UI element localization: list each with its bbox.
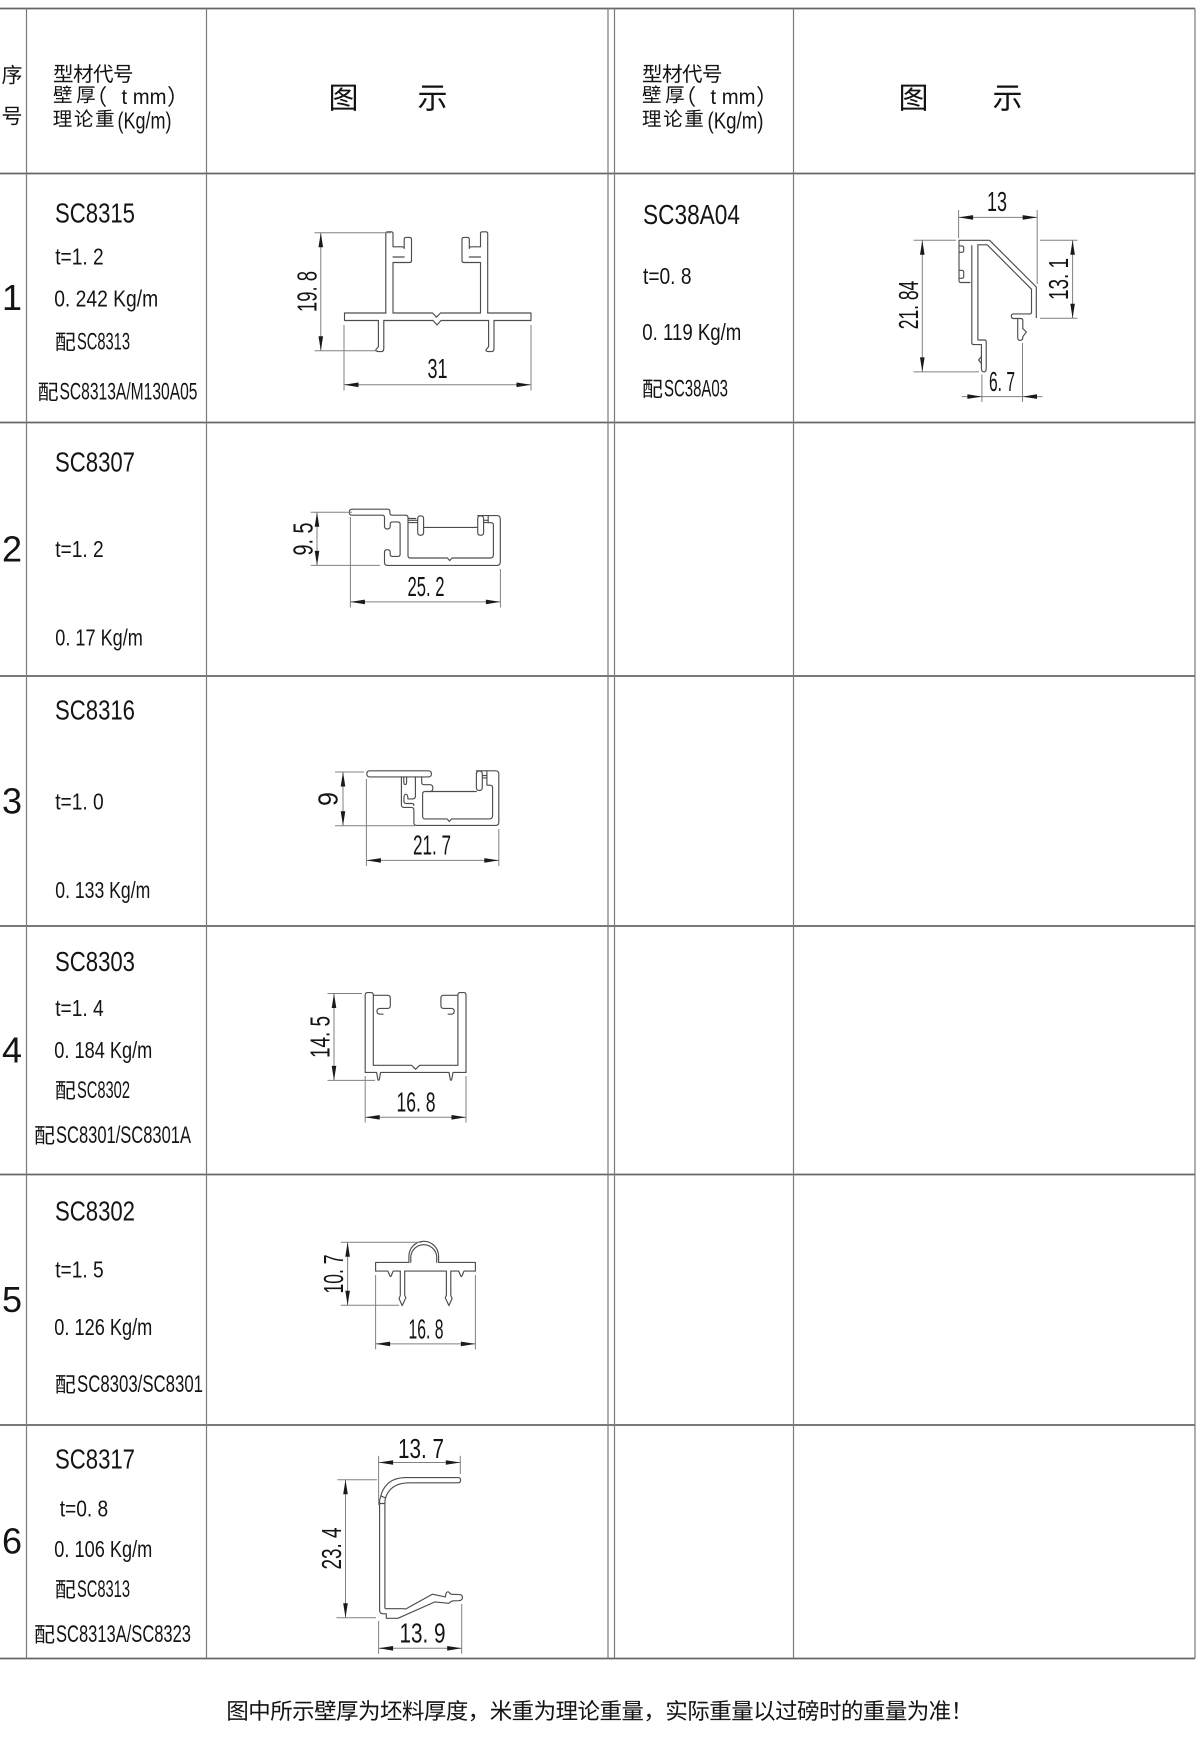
svg-text:t=0. 8: t=0. 8: [60, 1496, 108, 1522]
svg-text:10. 7: 10. 7: [318, 1255, 349, 1294]
svg-text:5: 5: [2, 1279, 22, 1320]
svg-text:SC38A04: SC38A04: [643, 199, 740, 230]
svg-text:SC8302: SC8302: [77, 1077, 130, 1104]
svg-text:0. 242 Kg/m: 0. 242 Kg/m: [54, 286, 158, 312]
svg-text:13. 7: 13. 7: [398, 1433, 444, 1464]
svg-text:23. 4: 23. 4: [316, 1528, 347, 1570]
svg-text:SC8307: SC8307: [55, 447, 135, 478]
svg-text:13: 13: [987, 186, 1007, 217]
svg-text:19. 8: 19. 8: [292, 271, 323, 312]
svg-text:SC38A03: SC38A03: [664, 376, 728, 403]
svg-text:6: 6: [2, 1521, 22, 1562]
svg-text:SC8315: SC8315: [55, 198, 135, 229]
svg-text:14. 5: 14. 5: [305, 1016, 336, 1058]
svg-text:0. 126 Kg/m: 0. 126 Kg/m: [54, 1314, 152, 1340]
svg-text:16. 8: 16. 8: [397, 1087, 436, 1118]
svg-text:t=1. 0: t=1. 0: [55, 789, 103, 815]
svg-text:31: 31: [428, 353, 448, 384]
svg-text:t=1. 2: t=1. 2: [55, 536, 103, 562]
svg-text:21. 84: 21. 84: [893, 281, 924, 330]
svg-text:SC8316: SC8316: [55, 695, 135, 726]
svg-text:SC8302: SC8302: [55, 1196, 135, 1227]
svg-text:6. 7: 6. 7: [989, 366, 1015, 397]
svg-text:9. 5: 9. 5: [288, 523, 319, 556]
svg-text:t mm: t mm: [711, 86, 756, 109]
svg-text:SC8313A/SC8323: SC8313A/SC8323: [56, 1621, 191, 1648]
svg-text:SC8313: SC8313: [77, 329, 130, 356]
svg-text:13. 1: 13. 1: [1043, 258, 1074, 300]
svg-text:SC8303: SC8303: [55, 946, 135, 977]
svg-text:0. 106 Kg/m: 0. 106 Kg/m: [54, 1536, 152, 1562]
svg-text:3: 3: [2, 781, 22, 822]
svg-text:21. 7: 21. 7: [413, 830, 451, 861]
svg-text:9: 9: [313, 792, 344, 806]
svg-text:16. 8: 16. 8: [409, 1314, 444, 1345]
svg-text:(Kg/m): (Kg/m): [708, 108, 764, 134]
svg-text:0. 119 Kg/m: 0. 119 Kg/m: [642, 319, 741, 345]
svg-text:4: 4: [2, 1030, 22, 1071]
svg-text:13. 9: 13. 9: [400, 1618, 446, 1649]
svg-text:0. 17 Kg/m: 0. 17 Kg/m: [55, 625, 143, 651]
svg-text:t=0. 8: t=0. 8: [643, 263, 692, 289]
svg-text:t=1. 4: t=1. 4: [55, 995, 104, 1021]
svg-text:25. 2: 25. 2: [408, 571, 445, 602]
svg-text:SC8317: SC8317: [55, 1444, 135, 1475]
svg-text:SC8301/SC8301A: SC8301/SC8301A: [56, 1122, 191, 1149]
svg-text:t mm: t mm: [122, 86, 167, 109]
svg-text:0. 133 Kg/m: 0. 133 Kg/m: [55, 877, 150, 903]
svg-text:(Kg/m): (Kg/m): [118, 108, 172, 134]
svg-text:0. 184 Kg/m: 0. 184 Kg/m: [54, 1037, 152, 1063]
svg-text:SC8303/SC8301: SC8303/SC8301: [77, 1371, 203, 1398]
svg-text:2: 2: [2, 529, 22, 570]
svg-text:t=1. 5: t=1. 5: [55, 1257, 103, 1283]
svg-text:1: 1: [2, 277, 22, 318]
svg-text:SC8313A/M130A05: SC8313A/M130A05: [60, 379, 198, 406]
svg-text:SC8313: SC8313: [77, 1576, 130, 1603]
svg-text:t=1. 2: t=1. 2: [55, 244, 103, 270]
